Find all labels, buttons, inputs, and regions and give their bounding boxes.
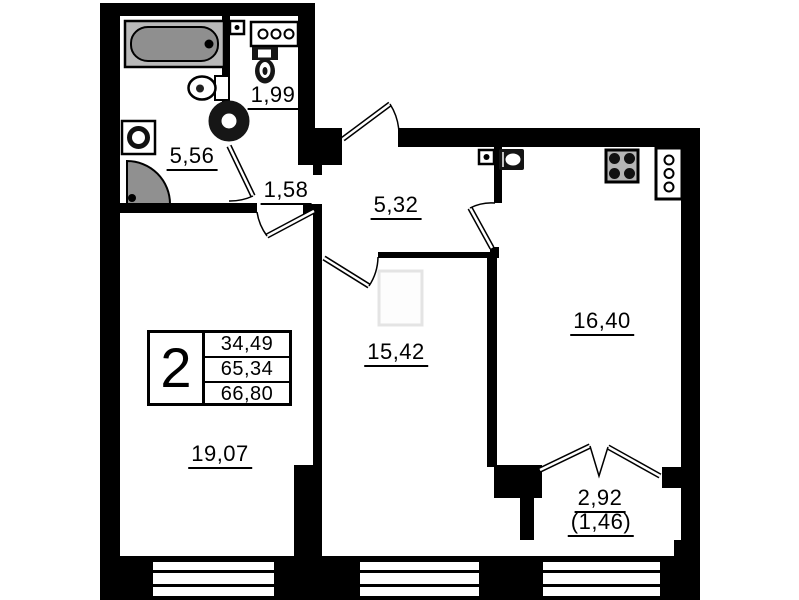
door-swing-arc — [369, 257, 378, 286]
meter-shelf-icon — [251, 22, 298, 46]
area-value: 65,34 — [205, 358, 289, 383]
wall — [487, 252, 497, 467]
door-leaf-inner — [324, 258, 369, 286]
kitchen-sink-icon — [499, 149, 524, 170]
window-bar — [153, 587, 274, 596]
door-leaf-inner — [229, 146, 253, 196]
electrical-panel-icon — [479, 150, 494, 164]
kitchen-counter-icon — [656, 148, 682, 199]
room-label-toilet: 1,99 — [248, 84, 299, 110]
toilet-icon — [252, 47, 278, 84]
stove-burner — [609, 168, 620, 179]
area-table: 34,49 65,34 66,80 — [205, 333, 289, 403]
wall — [674, 540, 681, 556]
room-label-bedroom: 15,42 — [364, 341, 428, 367]
door-swing-arc — [390, 104, 399, 133]
windows — [153, 562, 660, 596]
bathtub-drain — [205, 40, 214, 49]
stove-burner — [624, 168, 635, 179]
counter-circle — [665, 169, 674, 178]
living-room-window — [153, 562, 274, 596]
door-leaf-inner — [608, 447, 660, 476]
kitchen-door — [470, 203, 495, 248]
corner-shower-dot — [128, 194, 136, 202]
floor-plan-drawing — [0, 0, 799, 600]
window-bar — [543, 562, 660, 570]
wall — [100, 203, 257, 213]
counter-circle — [665, 156, 674, 165]
room-label-corridor: 5,32 — [371, 194, 422, 220]
entry-door — [343, 104, 399, 139]
washbasin-drain — [196, 85, 204, 93]
meter-circle — [259, 30, 268, 39]
vent-box-dot — [235, 25, 240, 30]
rooms-count: 2 — [150, 333, 205, 403]
bedroom-window — [360, 562, 479, 596]
room-label-kitchen: 16,40 — [570, 310, 634, 336]
kitchen-sink-basin — [506, 154, 521, 166]
vent-box-icon — [230, 21, 244, 34]
counter-circle — [665, 183, 674, 192]
room-label-balcony-reduced: (1,46) — [568, 511, 634, 537]
apartment-info-box: 2 34,49 65,34 66,80 — [147, 330, 292, 406]
stove-burner — [624, 153, 635, 164]
washing-machine-icon — [122, 121, 155, 154]
wall — [100, 3, 315, 16]
washbasin-icon — [189, 76, 230, 100]
window-bar — [153, 562, 274, 570]
bathtub-icon — [125, 21, 224, 67]
meter-circle — [285, 30, 294, 39]
wall — [681, 128, 700, 600]
door-leaf-inner — [470, 208, 492, 248]
corner-shower-icon — [127, 161, 170, 204]
balcony-window — [543, 562, 660, 596]
window-bar — [360, 587, 479, 596]
water-heater-icon — [215, 107, 243, 135]
door-swing-arc — [257, 212, 267, 236]
wall — [378, 252, 497, 258]
wall — [294, 465, 322, 558]
wall — [494, 465, 542, 498]
floor-plan: 5,56 1,99 1,58 5,32 19,07 15,42 16,40 2,… — [0, 0, 799, 600]
wall — [398, 128, 681, 147]
living-room-door — [257, 211, 314, 236]
stove-icon — [606, 150, 638, 182]
stove-burner — [609, 153, 620, 164]
wall — [520, 488, 534, 540]
door-leaf-inner — [267, 211, 314, 236]
room-label-hall: 1,58 — [261, 179, 312, 205]
window-bar — [360, 573, 479, 584]
wardrobe-ghost — [379, 271, 422, 325]
window-bar — [360, 562, 479, 570]
wall — [313, 206, 322, 466]
door-swing-arc — [470, 203, 495, 208]
room-label-living-room: 19,07 — [188, 443, 252, 469]
living-area-value: 34,49 — [205, 333, 289, 358]
toilet-tank-lid — [258, 50, 271, 58]
balcony-french-door — [540, 446, 660, 476]
bedroom-door — [324, 257, 378, 286]
electrical-panel-dot — [484, 154, 490, 160]
toilet-bowl-center — [263, 67, 268, 75]
meter-circle — [272, 30, 281, 39]
doors — [229, 104, 660, 476]
washbasin-bracket — [215, 76, 229, 100]
room-label-bathroom: 5,56 — [167, 145, 218, 171]
door-leaf-inner — [540, 446, 590, 470]
bathroom-door — [229, 146, 253, 201]
wall — [313, 147, 322, 175]
window-bar — [153, 573, 274, 584]
wall — [100, 3, 120, 600]
door-swing-lines — [590, 446, 608, 476]
door-swing-arc — [229, 196, 253, 201]
wall — [490, 247, 499, 258]
total-area-value: 66,80 — [205, 383, 289, 406]
washing-machine-body — [122, 121, 155, 154]
window-bar — [543, 587, 660, 596]
window-bar — [543, 573, 660, 584]
wall — [662, 467, 681, 488]
door-leaf-inner — [343, 104, 390, 139]
